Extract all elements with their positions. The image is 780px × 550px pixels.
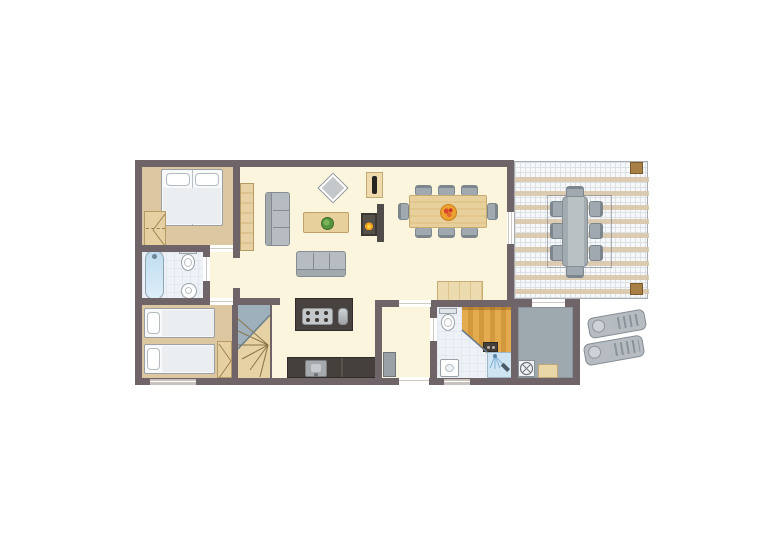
sofa-icon xyxy=(296,251,346,277)
wall-bedroom2-right xyxy=(232,305,238,378)
fireplace-icon xyxy=(361,213,377,236)
washbasin-icon xyxy=(440,359,459,377)
dining-chair-icon xyxy=(438,227,455,238)
wardrobe-icon xyxy=(144,211,166,247)
wall-hall-left xyxy=(375,307,382,378)
pergola-post-icon xyxy=(630,162,643,174)
patio-chair-icon xyxy=(589,245,603,261)
wall-storage-left xyxy=(511,307,518,378)
wall-living-bottom xyxy=(375,300,514,307)
winder-stairs-icon xyxy=(238,305,270,378)
coffee-table-plant-icon xyxy=(303,212,349,233)
dining-chair-icon xyxy=(487,203,498,220)
single-bed-icon xyxy=(144,344,215,374)
shower-spray-icon xyxy=(487,352,514,378)
dining-chair-icon xyxy=(461,227,478,238)
fireplace-wall-panel xyxy=(377,204,384,242)
counter-sink-icon xyxy=(305,360,327,377)
door-bedroom1 xyxy=(210,245,233,252)
tall-cabinet-icon xyxy=(240,183,254,251)
pillow xyxy=(147,348,160,370)
dining-chair-icon xyxy=(415,227,432,238)
storage-box-icon xyxy=(538,364,558,378)
patio-chair-icon xyxy=(589,223,603,239)
patio-table-icon xyxy=(562,196,588,267)
window-bedroom2 xyxy=(150,379,196,385)
pillow xyxy=(147,312,160,334)
dining-chair-icon xyxy=(398,203,409,220)
door-front-entrance xyxy=(399,377,429,385)
door-hall-living xyxy=(399,300,431,307)
wall-exterior-left xyxy=(135,160,142,385)
door-hall-showerroom xyxy=(430,318,437,341)
door-storage-terrace xyxy=(532,299,565,307)
patio-chair-icon xyxy=(566,266,584,278)
sofa-icon xyxy=(265,192,290,246)
washing-machine-icon xyxy=(518,360,535,377)
window-showerroom xyxy=(444,379,470,385)
wall-exterior-bottom xyxy=(135,378,580,385)
closet-icon xyxy=(217,341,232,378)
door-bathroom-main xyxy=(203,257,210,281)
pergola-post-icon xyxy=(630,283,643,295)
bathtub-icon xyxy=(145,250,164,300)
flame-icon xyxy=(365,221,373,230)
opening-corridor-living xyxy=(233,258,240,288)
island-sink-icon xyxy=(338,308,348,325)
door-bedroom2 xyxy=(210,298,233,305)
single-bed-icon xyxy=(144,308,215,338)
kitchen-island-hob-icon xyxy=(295,298,353,331)
wall-exterior-top xyxy=(135,160,514,167)
wall-annex-right xyxy=(573,299,580,385)
door-dining-terrace xyxy=(507,212,514,244)
kitchen-counter-icon xyxy=(287,357,379,378)
fruit-bowl-icon xyxy=(440,204,457,221)
stair-balustrade xyxy=(270,305,272,378)
tv-cabinet-icon xyxy=(366,172,383,198)
pillow xyxy=(195,173,219,186)
tv-icon xyxy=(372,176,377,194)
sideboard-icon xyxy=(437,281,483,302)
floor-plan-canvas xyxy=(0,0,780,550)
toilet-icon xyxy=(439,308,457,333)
double-bed-icon xyxy=(161,169,223,226)
door-leaf-icon xyxy=(383,352,396,377)
dining-table-icon xyxy=(409,195,487,228)
hob-icon xyxy=(302,308,333,325)
patio-chair-icon xyxy=(589,201,603,217)
sauna-stove-icon xyxy=(483,342,498,352)
pillow xyxy=(166,173,190,186)
